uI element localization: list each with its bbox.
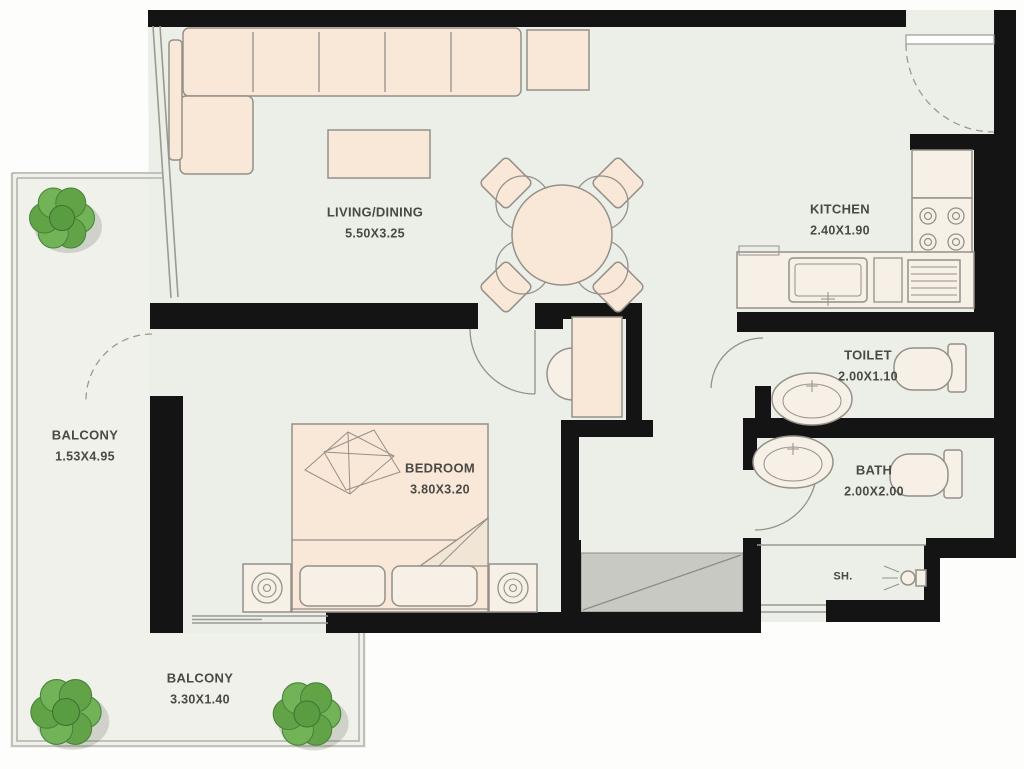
nightstand-right (489, 564, 537, 612)
room-name: TOILET (838, 346, 898, 367)
bed (292, 424, 488, 612)
room-dims: 2.00X2.00 (844, 481, 904, 501)
room-label-living: LIVING/DINING 5.50X3.25 (327, 203, 423, 244)
room-dims: 3.80X3.20 (405, 479, 475, 499)
pillow (300, 566, 385, 606)
room-label-balcony-bottom: BALCONY 3.30X1.40 (167, 669, 233, 710)
room-name: SH. (833, 572, 852, 583)
room-name: BALCONY (52, 426, 118, 447)
hallway-closet (572, 317, 622, 417)
toilet-wc-icon (894, 344, 966, 392)
lamp-icon (252, 573, 282, 603)
bath-basin-icon (753, 436, 833, 488)
kitchen-sink (789, 258, 867, 306)
room-name: KITCHEN (810, 200, 870, 221)
room-dims: 1.53X4.95 (52, 446, 118, 466)
nightstand-left (243, 564, 291, 612)
room-name: BEDROOM (405, 459, 475, 480)
dining-table (512, 185, 612, 285)
room-dims: 5.50X3.25 (327, 223, 423, 243)
room-dims: 2.00X1.10 (838, 366, 898, 386)
room-name: BATH (844, 461, 904, 482)
coffee-table (328, 130, 430, 178)
floor-plan: LIVING/DINING 5.50X3.25 KITCHEN 2.40X1.9… (0, 0, 1024, 769)
room-label-bedroom: BEDROOM 3.80X3.20 (405, 459, 475, 500)
room-dims: 3.30X1.40 (167, 689, 233, 709)
sofa-chaise (180, 96, 253, 174)
dishwasher (908, 260, 960, 302)
stove (912, 198, 972, 254)
room-label-kitchen: KITCHEN 2.40X1.90 (810, 200, 870, 241)
room-label-shower: SH. (833, 572, 852, 583)
room-label-toilet: TOILET 2.00X1.10 (838, 346, 898, 387)
room-label-bath: BATH 2.00X2.00 (844, 461, 904, 502)
console-table (527, 30, 589, 90)
sofa-armrest (169, 40, 182, 160)
room-name: LIVING/DINING (327, 203, 423, 224)
pillow (392, 566, 477, 606)
kitchen-counter-upper (912, 150, 972, 198)
service-shaft (581, 553, 743, 612)
lamp-icon (498, 573, 528, 603)
room-dims: 2.40X1.90 (810, 220, 870, 240)
room-name: BALCONY (167, 669, 233, 690)
room-label-balcony-left: BALCONY 1.53X4.95 (52, 426, 118, 467)
